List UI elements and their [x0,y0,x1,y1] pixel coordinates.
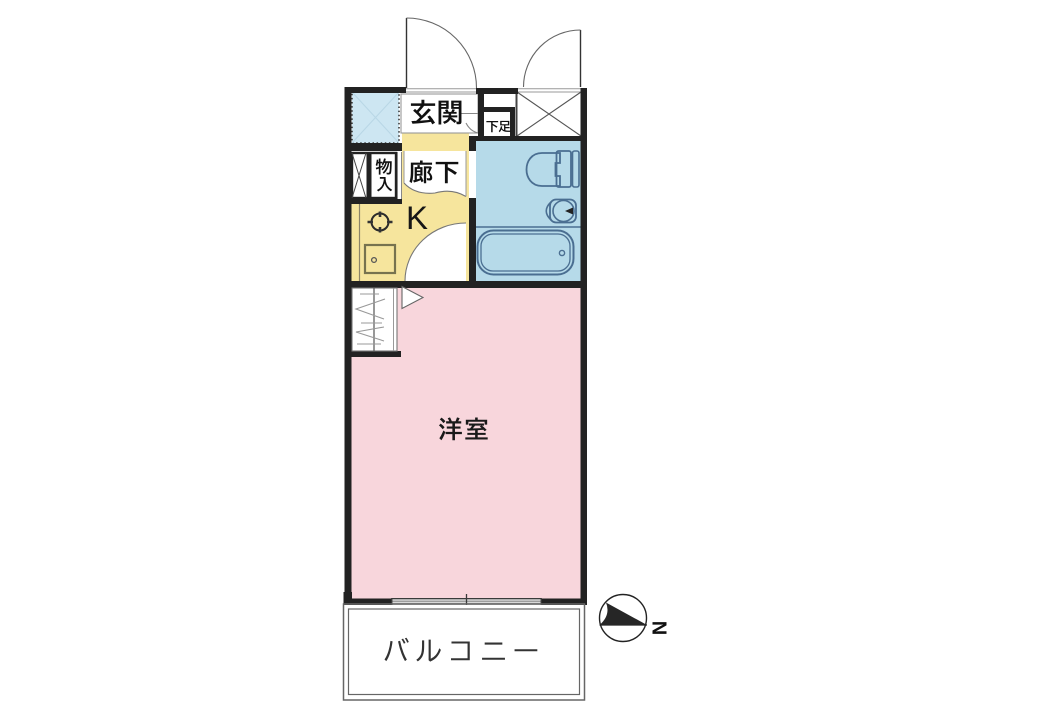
svg-text:N: N [648,621,670,635]
svg-text:K: K [406,200,428,236]
